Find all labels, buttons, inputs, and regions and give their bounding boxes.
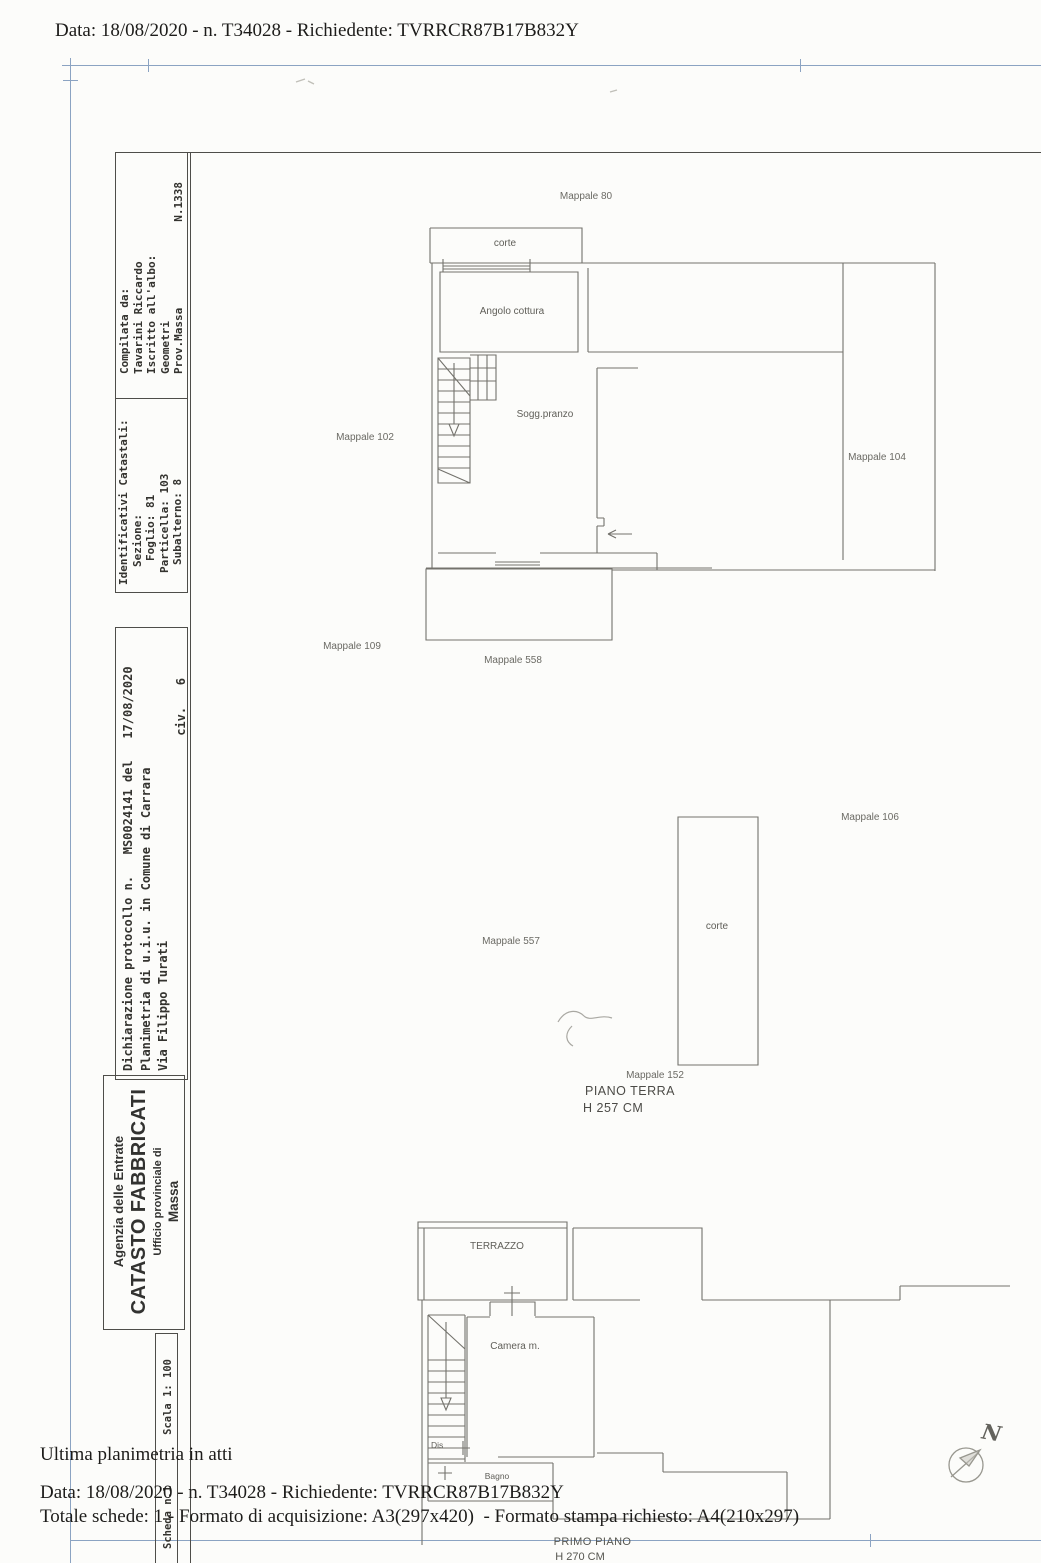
label-piano-terra: PIANO TERRA: [585, 1084, 675, 1098]
label-mappale-102: Mappale 102: [325, 432, 405, 443]
footer-line3: Totale schede: 1 - Formato di acquisizio…: [40, 1506, 799, 1528]
label-mappale-558: Mappale 558: [473, 655, 553, 666]
label-bagno: Bagno: [477, 1471, 517, 1481]
label-mappale-109: Mappale 109: [312, 641, 392, 652]
label-mappale-152: Mappale 152: [615, 1070, 695, 1081]
scan-specks: [296, 79, 617, 92]
label-corte-top: corte: [480, 238, 530, 249]
label-mappale-557: Mappale 557: [471, 936, 551, 947]
label-mappale-106: Mappale 106: [830, 812, 910, 823]
footer-line1: Ultima planimetria in atti: [40, 1444, 233, 1466]
label-terrazzo: TERRAZZO: [457, 1241, 537, 1252]
label-angolo-cottura: Angolo cottura: [462, 306, 562, 317]
label-sogg-pranzo: Sogg.pranzo: [505, 409, 585, 420]
floor-plan-drawing: [0, 0, 1041, 1563]
label-primo-piano: PRIMO PIANO: [545, 1536, 640, 1548]
label-h270: H 270 CM: [550, 1551, 610, 1563]
compass-icon: [949, 1448, 983, 1482]
label-corte-mid: corte: [692, 921, 742, 932]
label-mappale-104: Mappale 104: [837, 452, 917, 463]
label-mappale-80: Mappale 80: [546, 191, 626, 202]
pen-scribble: [558, 1011, 612, 1046]
label-dis: Dis: [431, 1440, 443, 1450]
label-h257: H 257 CM: [583, 1101, 643, 1115]
scanned-cadastral-sheet: Data: 18/08/2020 - n. T34028 - Richieden…: [0, 0, 1041, 1563]
footer-line2: Data: 18/08/2020 - n. T34028 - Richieden…: [40, 1482, 564, 1504]
label-camera: Camera m.: [475, 1341, 555, 1352]
